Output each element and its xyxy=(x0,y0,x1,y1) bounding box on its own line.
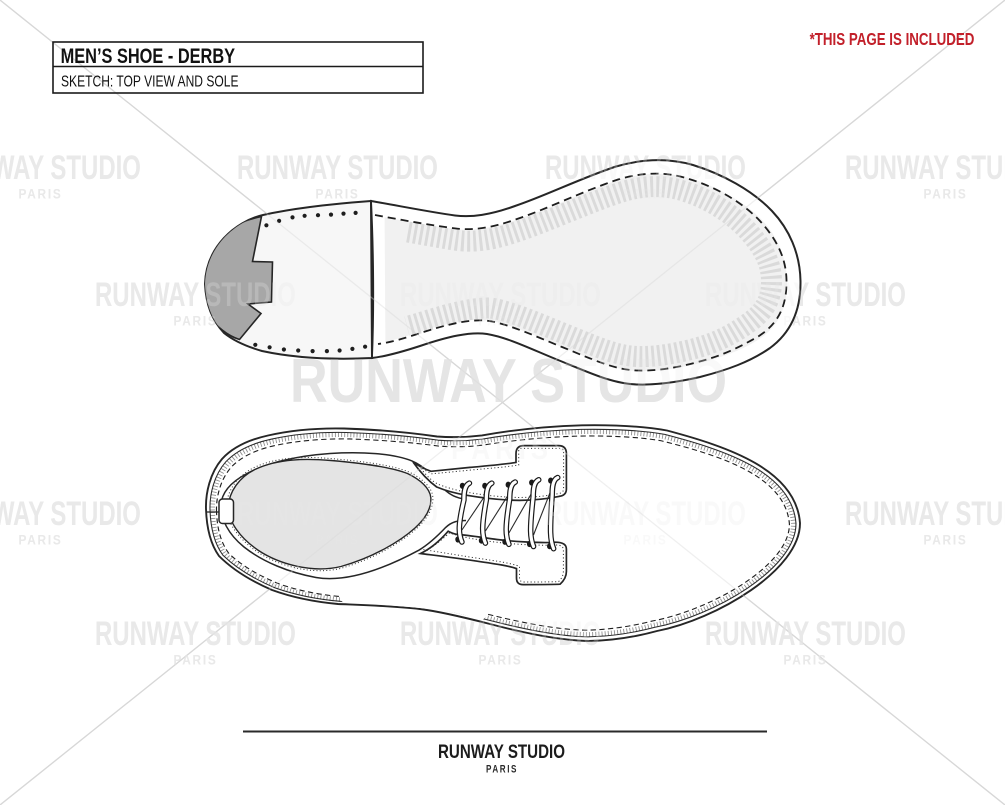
svg-text:RUNWAY STUDIO: RUNWAY STUDIO xyxy=(545,149,746,187)
svg-text:PARIS: PARIS xyxy=(479,313,523,328)
svg-text:RUNWAY STUDIO: RUNWAY STUDIO xyxy=(705,276,906,314)
svg-text:PARIS: PARIS xyxy=(174,313,218,328)
svg-text:RUNWAY STUDIO: RUNWAY STUDIO xyxy=(237,495,438,533)
svg-text:SKETCH: TOP VIEW AND SOLE: SKETCH: TOP VIEW AND SOLE xyxy=(61,72,239,90)
svg-text:RUNWAY STUDIO: RUNWAY STUDIO xyxy=(0,149,141,187)
svg-text:PARIS: PARIS xyxy=(316,186,360,201)
svg-text:PARIS: PARIS xyxy=(19,186,63,201)
svg-text:PARIS: PARIS xyxy=(19,532,63,547)
svg-text:RUNWAY STUDIO: RUNWAY STUDIO xyxy=(290,346,727,415)
svg-text:PARIS: PARIS xyxy=(451,432,553,466)
svg-text:PARIS: PARIS xyxy=(924,186,968,201)
svg-text:RUNWAY STUDIO: RUNWAY STUDIO xyxy=(545,495,746,533)
svg-text:*THIS PAGE IS INCLUDED: *THIS PAGE IS INCLUDED xyxy=(810,31,975,50)
svg-text:RUNWAY STUDIO: RUNWAY STUDIO xyxy=(237,149,438,187)
svg-text:PARIS: PARIS xyxy=(784,652,828,667)
svg-text:RUNWAY STUDIO: RUNWAY STUDIO xyxy=(705,615,906,653)
svg-text:RUNWAY STUDIO: RUNWAY STUDIO xyxy=(400,276,601,314)
svg-text:RUNWAY STUDIO: RUNWAY STUDIO xyxy=(438,740,565,762)
svg-text:PARIS: PARIS xyxy=(624,186,668,201)
svg-text:RUNWAY STUDIO: RUNWAY STUDIO xyxy=(95,615,296,653)
svg-text:RUNWAY STUDIO: RUNWAY STUDIO xyxy=(845,149,1005,187)
svg-text:PARIS: PARIS xyxy=(784,313,828,328)
svg-text:PARIS: PARIS xyxy=(624,532,668,547)
svg-text:MEN’S SHOE - DERBY: MEN’S SHOE - DERBY xyxy=(61,45,236,69)
svg-text:PARIS: PARIS xyxy=(479,652,523,667)
svg-text:PARIS: PARIS xyxy=(486,764,518,776)
svg-text:RUNWAY STUDIO: RUNWAY STUDIO xyxy=(845,495,1005,533)
svg-text:RUNWAY STUDIO: RUNWAY STUDIO xyxy=(95,276,296,314)
svg-text:RUNWAY STUDIO: RUNWAY STUDIO xyxy=(0,495,141,533)
svg-text:RUNWAY STUDIO: RUNWAY STUDIO xyxy=(400,615,601,653)
svg-text:PARIS: PARIS xyxy=(924,532,968,547)
